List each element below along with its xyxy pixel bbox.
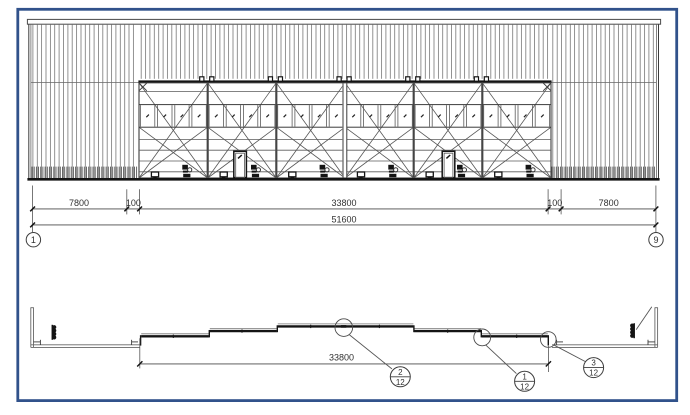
svg-text:9: 9 [653, 235, 658, 245]
svg-text:1: 1 [31, 235, 36, 245]
svg-text:12: 12 [396, 378, 405, 387]
svg-text:7800: 7800 [599, 198, 619, 208]
svg-text:100: 100 [547, 198, 562, 208]
svg-text:51600: 51600 [331, 214, 356, 224]
svg-text:12: 12 [589, 369, 598, 378]
svg-text:2: 2 [398, 368, 403, 377]
svg-text:33800: 33800 [329, 352, 354, 362]
svg-text:3: 3 [591, 359, 596, 368]
svg-text:33800: 33800 [331, 198, 356, 208]
svg-text:12: 12 [520, 382, 529, 391]
svg-text:1: 1 [522, 372, 527, 381]
svg-text:7800: 7800 [69, 198, 89, 208]
svg-text:100: 100 [126, 198, 141, 208]
